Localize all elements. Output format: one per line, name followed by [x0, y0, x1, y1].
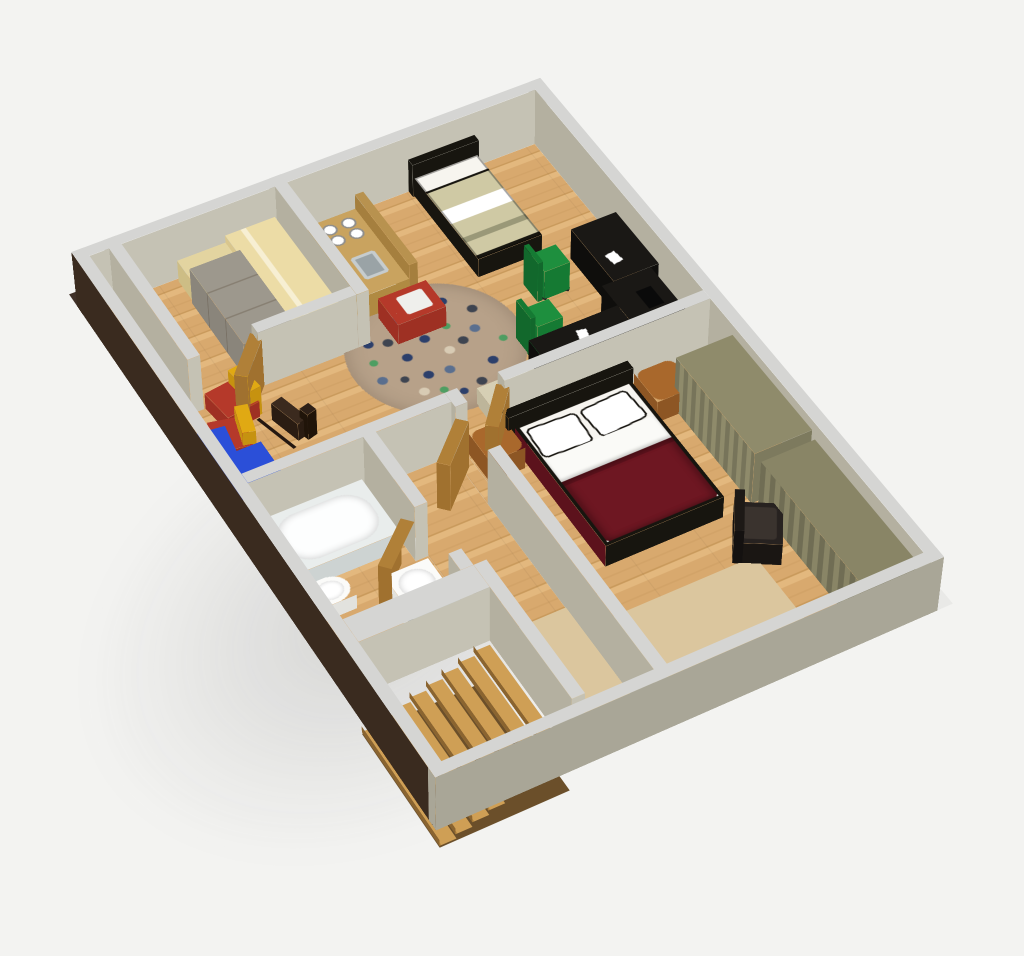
armchair-cushion: [742, 506, 777, 539]
paper-sheet: [605, 251, 624, 265]
master-armchair: [726, 519, 792, 570]
armchair-back: [732, 522, 743, 564]
render-canvas: [0, 0, 1024, 956]
toy-stove-panel: [395, 288, 434, 315]
laptop: [635, 286, 664, 309]
